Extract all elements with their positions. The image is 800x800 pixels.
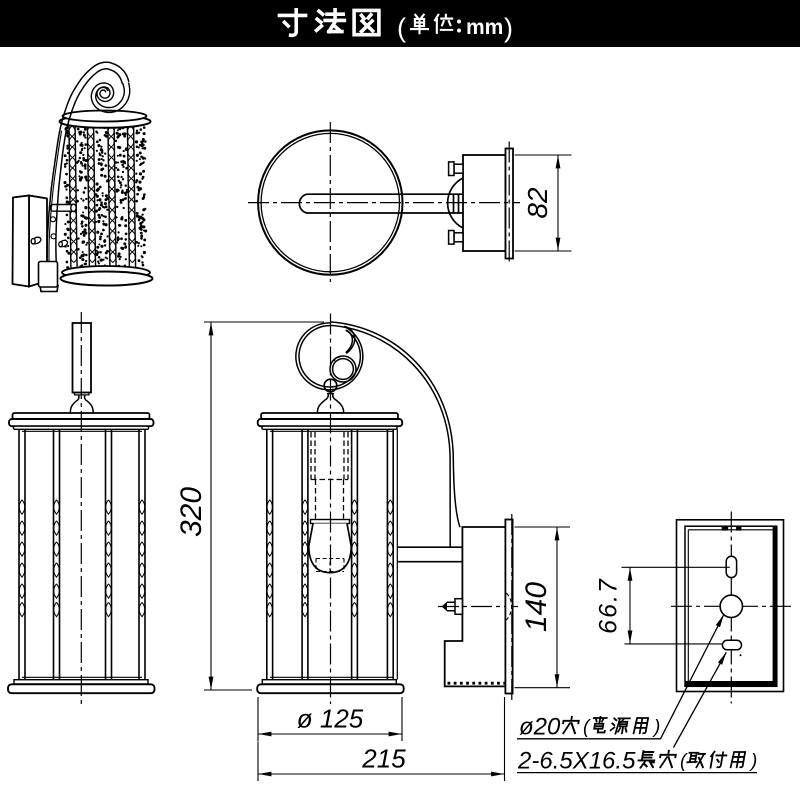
svg-text:ø 125: ø 125 — [297, 704, 364, 734]
svg-text:140: 140 — [520, 582, 553, 632]
svg-text:82: 82 — [522, 187, 553, 219]
svg-text:): ) — [652, 717, 660, 738]
svg-text:): ) — [749, 751, 757, 772]
svg-text:320: 320 — [175, 487, 208, 537]
svg-text:66.7: 66.7 — [595, 577, 623, 634]
svg-text:): ) — [504, 13, 513, 43]
svg-text:mm: mm — [466, 16, 503, 39]
svg-text:(: ( — [397, 13, 406, 43]
svg-text:ø20: ø20 — [519, 714, 561, 741]
svg-text:215: 215 — [361, 744, 406, 774]
svg-text:2-6.5X16.5: 2-6.5X16.5 — [517, 748, 636, 775]
